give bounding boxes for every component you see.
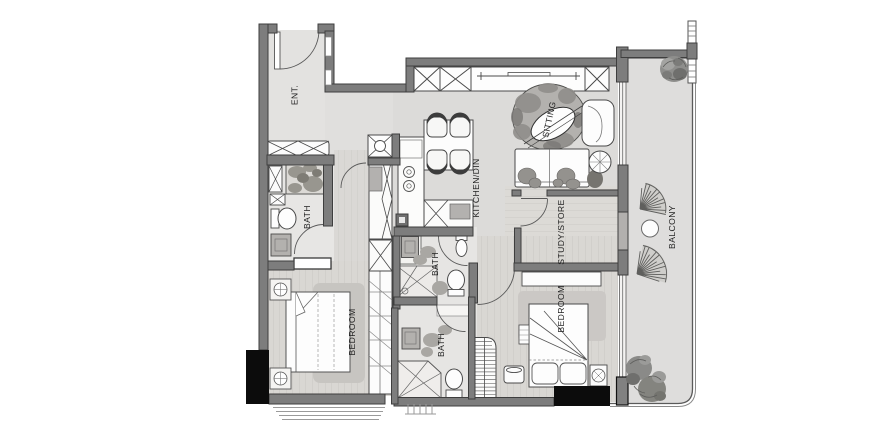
svg-text:ENT.: ENT. [290,85,300,105]
svg-text:BALCONY: BALCONY [667,205,677,249]
svg-text:BATH: BATH [302,205,312,229]
svg-text:BATH: BATH [430,252,440,276]
svg-text:BATH: BATH [436,333,446,357]
svg-text:BEDROOM: BEDROOM [347,308,357,355]
svg-text:BEDROOM: BEDROOM [556,285,566,332]
svg-text:STUDY/STORE: STUDY/STORE [556,199,566,264]
svg-text:KITCHEN/DIN: KITCHEN/DIN [471,158,481,217]
